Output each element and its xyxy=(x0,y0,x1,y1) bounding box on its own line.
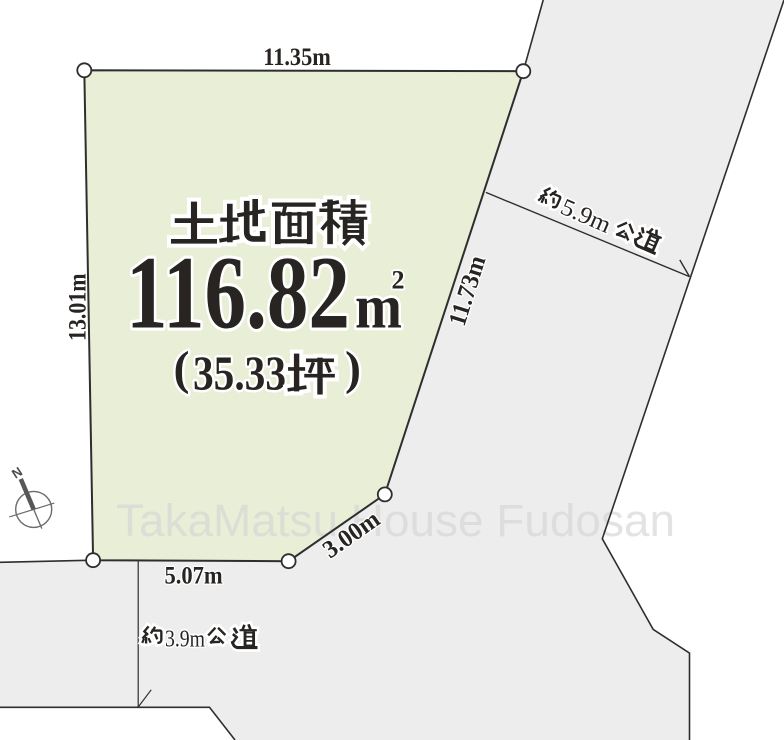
svg-text:35.33: 35.33 xyxy=(193,346,286,401)
svg-text:116.82: 116.82 xyxy=(126,236,350,351)
svg-text:2: 2 xyxy=(392,266,405,295)
svg-text:5.07m: 5.07m xyxy=(165,563,223,590)
svg-text:3.9m: 3.9m xyxy=(165,627,205,653)
svg-text:11.35m: 11.35m xyxy=(263,44,331,71)
svg-text:TakaMatsu House Fudosan: TakaMatsu House Fudosan xyxy=(116,495,675,546)
svg-text:): ) xyxy=(345,342,361,395)
svg-text:13.01m: 13.01m xyxy=(64,273,91,341)
svg-text:(: ( xyxy=(174,342,190,395)
